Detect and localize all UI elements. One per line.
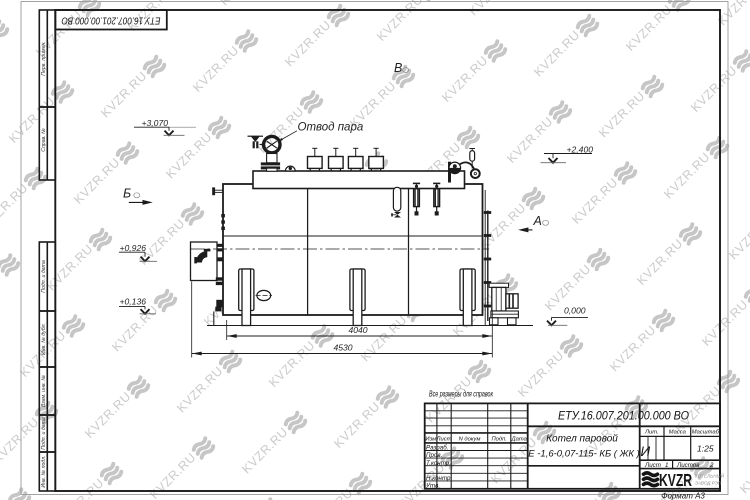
svg-text:Лист: Лист	[644, 462, 661, 469]
svg-text:Формат А3: Формат А3	[661, 492, 705, 500]
svg-text:N докум: N докум	[459, 436, 481, 442]
svg-text:Дата: Дата	[511, 436, 528, 442]
svg-text:+2,400: +2,400	[567, 145, 594, 155]
svg-text:Все размеры для справок: Все размеры для справок	[429, 389, 494, 398]
svg-text:ЕТУ.16.007.201.00.000 ВО: ЕТУ.16.007.201.00.000 ВО	[61, 15, 160, 26]
svg-text:Утв.: Утв.	[425, 482, 440, 489]
svg-text:4040: 4040	[348, 325, 367, 335]
svg-text:2: 2	[709, 462, 714, 469]
svg-text:0,000: 0,000	[564, 306, 586, 316]
svg-text:+0,926: +0,926	[120, 243, 147, 253]
svg-text:Б: Б	[123, 187, 131, 201]
svg-text:Т.контр.: Т.контр.	[426, 460, 451, 467]
svg-text:+3,070: +3,070	[142, 118, 169, 128]
svg-text:Подп. и дата: Подп. и дата	[41, 260, 47, 293]
svg-text:1:25: 1:25	[697, 444, 714, 454]
svg-text:Е -1,6-0,07-115- КБ ( ЖК ): Е -1,6-0,07-115- КБ ( ЖК )	[528, 449, 639, 460]
svg-text:Инв. № подл.: Инв. № подл.	[41, 455, 47, 487]
svg-text:И: И	[641, 444, 651, 459]
svg-text:Подп.: Подп.	[491, 436, 506, 442]
svg-text:Н.контр.: Н.контр.	[426, 475, 452, 482]
svg-text:Перв. примен.: Перв. примен.	[41, 41, 47, 75]
svg-text:Инв. № дубл.: Инв. № дубл.	[41, 323, 47, 355]
svg-text:Листов: Листов	[676, 462, 700, 469]
svg-text:Разраб.: Разраб.	[426, 445, 448, 452]
svg-text:4530: 4530	[333, 343, 352, 353]
svg-text:Лит.: Лит.	[644, 430, 659, 436]
svg-text:Подп. и дата: Подп. и дата	[41, 417, 47, 450]
svg-text:Изм: Изм	[425, 436, 436, 442]
svg-text:Пров.: Пров.	[426, 452, 442, 459]
svg-text:Котел паровой: Котел паровой	[546, 434, 618, 445]
svg-text:Масштаб: Масштаб	[692, 430, 720, 436]
svg-text:Масса: Масса	[669, 430, 687, 436]
svg-text:В: В	[394, 61, 402, 75]
svg-text:ЕТУ.16.007.201.00.000 ВО: ЕТУ.16.007.201.00.000 ВО	[558, 409, 689, 423]
svg-text:Взам. инв. №: Взам. инв. №	[41, 375, 47, 407]
svg-text:1: 1	[665, 462, 668, 469]
svg-text:ЗАВОД РЭП: ЗАВОД РЭП	[695, 481, 722, 486]
svg-text:Лист: Лист	[436, 436, 452, 442]
svg-text:Отвод пара: Отвод пара	[298, 122, 364, 134]
svg-text:+0,136: +0,136	[120, 297, 147, 307]
svg-text:КОТЕЛЬНЫЙ: КОТЕЛЬНЫЙ	[695, 472, 725, 479]
svg-text:А: А	[533, 214, 542, 228]
svg-text:KVZR: KVZR	[659, 470, 692, 490]
svg-text:Справ. №: Справ. №	[41, 128, 47, 152]
